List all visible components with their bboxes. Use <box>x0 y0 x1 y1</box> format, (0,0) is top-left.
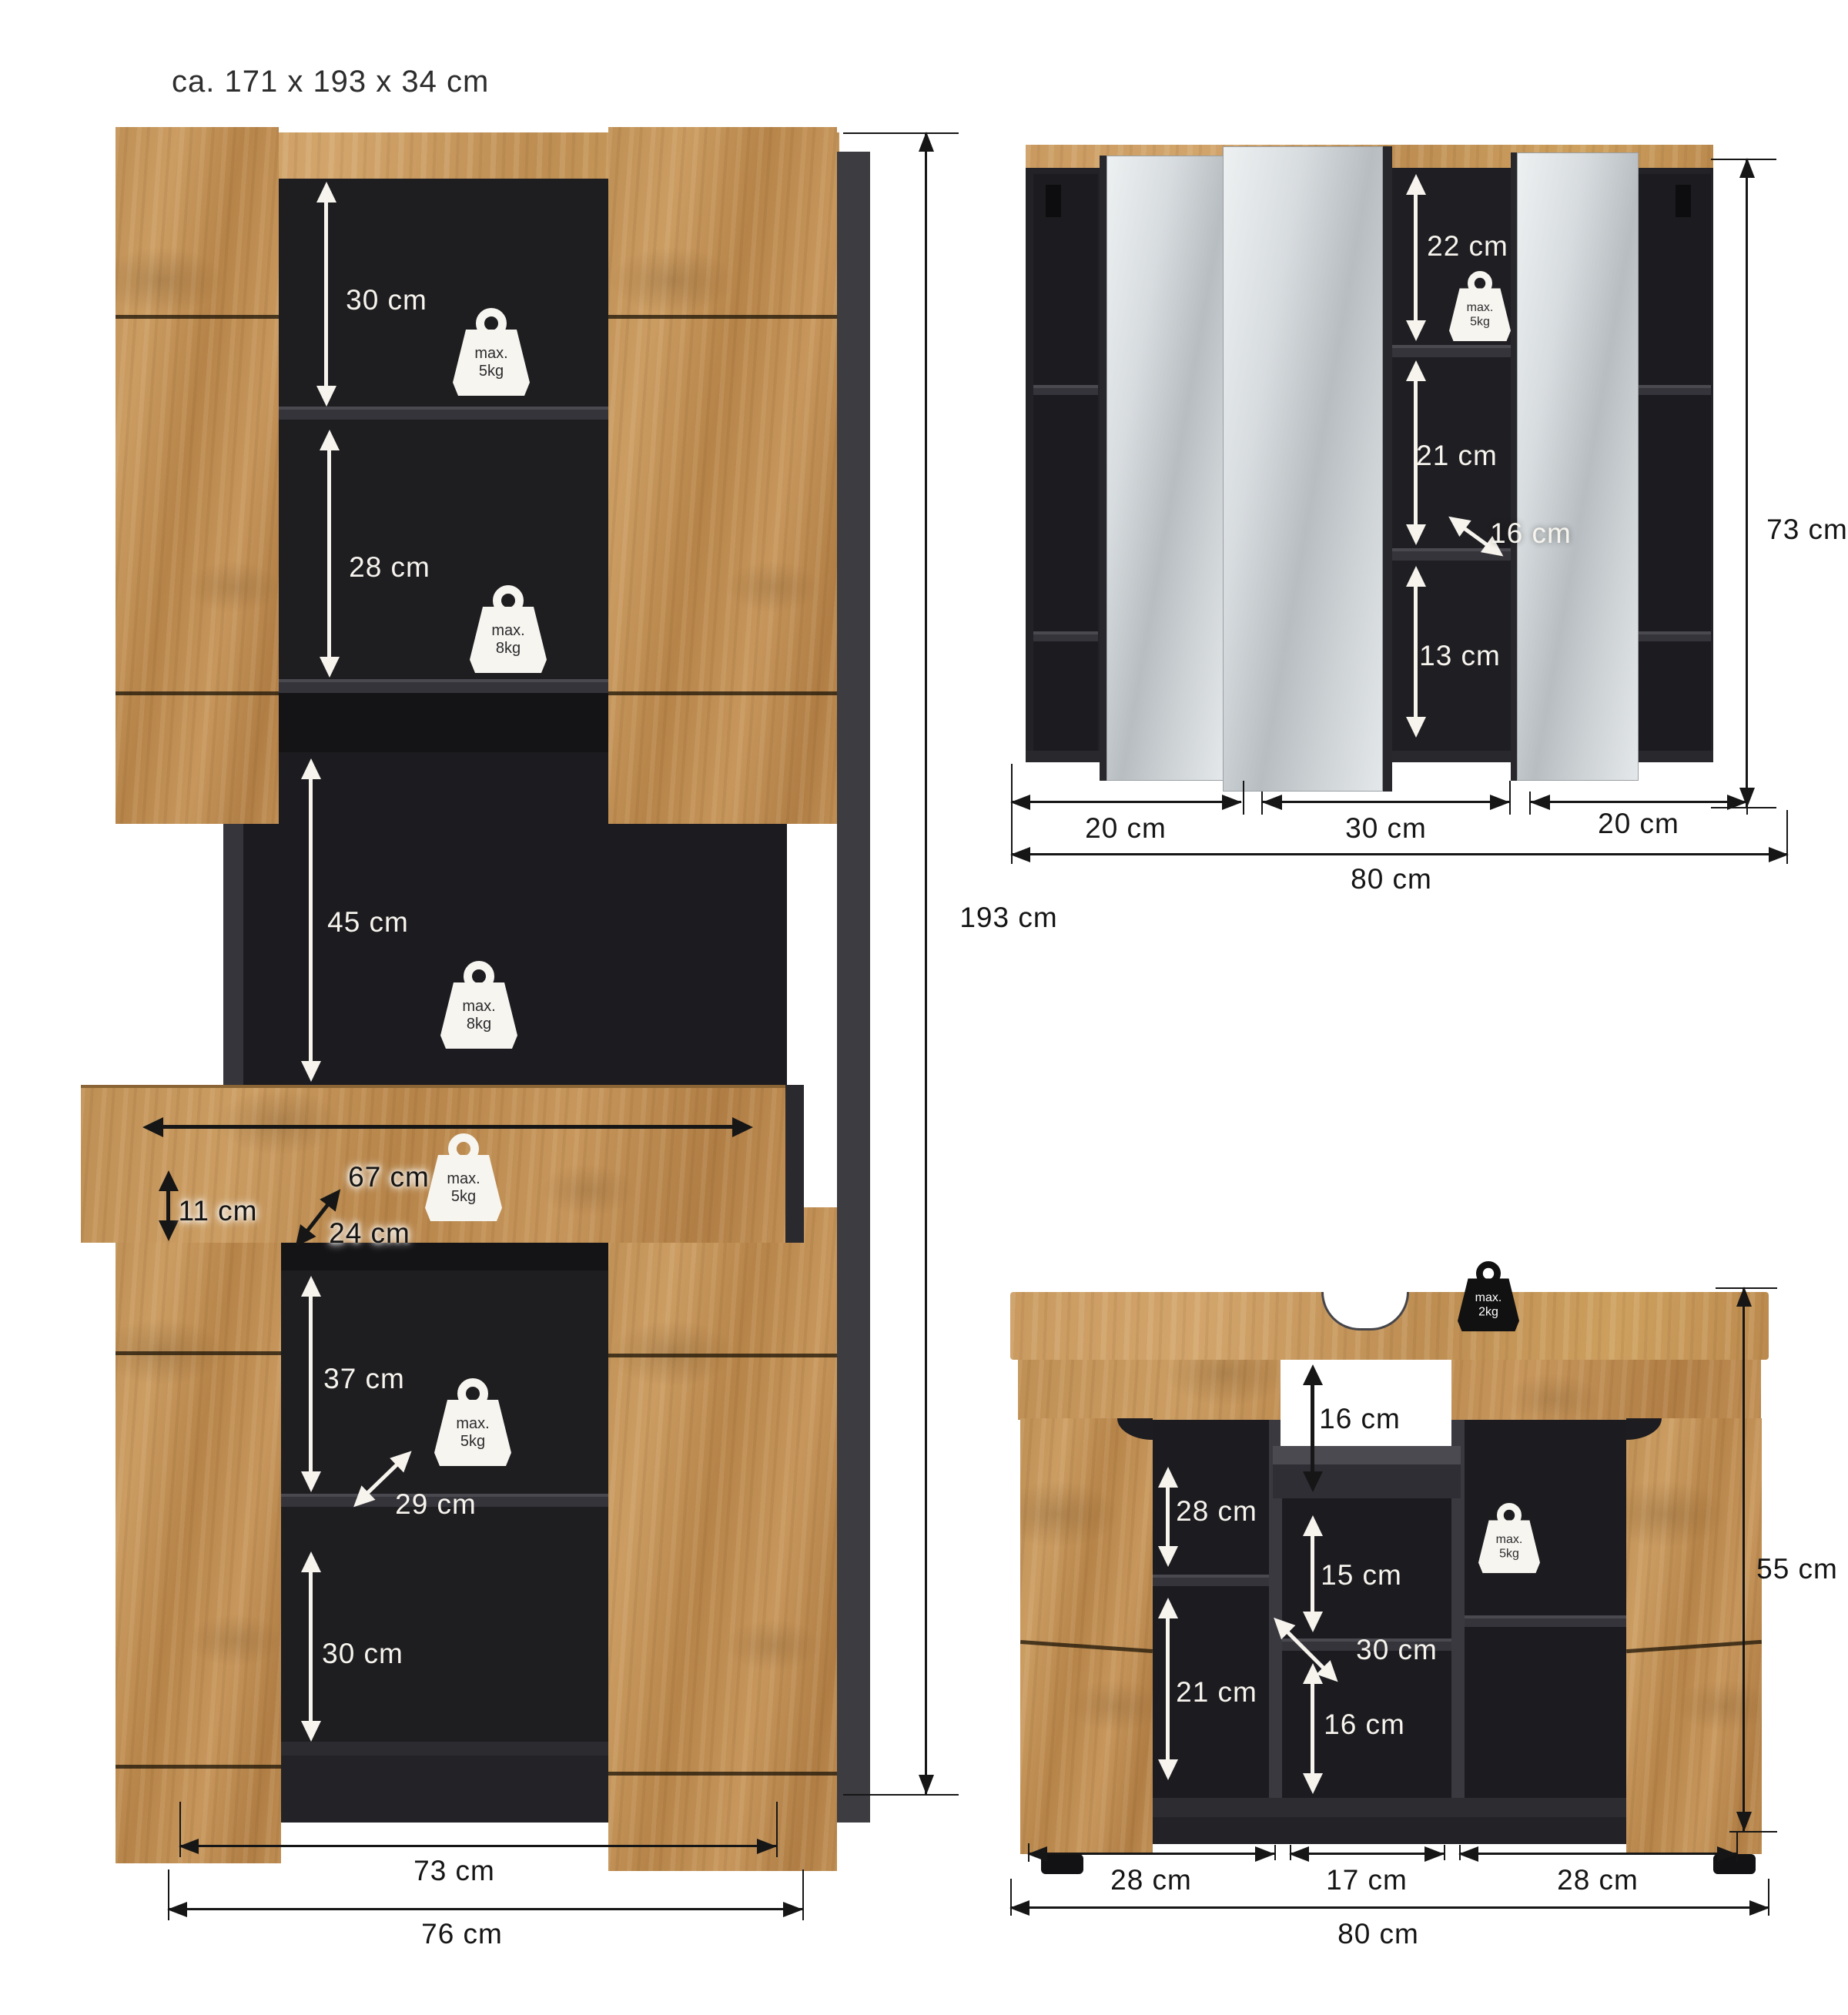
dim-vanity-lower-center: 16 cm <box>1324 1709 1405 1741</box>
arrow-open-compartment-height <box>309 758 313 1082</box>
mirror-door-center <box>1223 146 1392 792</box>
max-load-badge-countertop: max.2kg <box>1458 1261 1519 1331</box>
dim-mirror-middle-section: 21 cm <box>1416 440 1498 472</box>
door-groove <box>608 691 837 695</box>
door-groove <box>115 1351 281 1355</box>
door-groove <box>608 1354 837 1357</box>
vanity-center-shelf-top <box>1273 1446 1461 1464</box>
max-load-value: 5kg <box>451 1188 476 1206</box>
dim-drawer-width: 67 cm <box>348 1161 430 1193</box>
arrow-lower-compartment-height <box>309 1276 313 1492</box>
dim-tick <box>843 1794 959 1796</box>
max-load-label: max. <box>447 1170 480 1188</box>
vanity-base <box>1151 1817 1626 1844</box>
vanity-right-door <box>1626 1418 1762 1854</box>
dim-vanity-center: 17 cm <box>1326 1864 1408 1896</box>
dim-top-shelf: 30 cm <box>346 284 427 316</box>
mirror-cabinet-left-column <box>1033 174 1098 751</box>
arrow-mirror-bottom-section <box>1414 566 1418 738</box>
arrow-drawer-height <box>166 1170 170 1241</box>
dim-vanity-center-shelf: 15 cm <box>1321 1559 1402 1592</box>
dim-total-height: 193 cm <box>959 902 1057 934</box>
arrow-vanity-lower-center <box>1311 1663 1314 1794</box>
max-load-value: 2kg <box>1478 1305 1498 1319</box>
door-groove <box>115 315 279 319</box>
dim-mirror-top-section: 22 cm <box>1427 230 1508 263</box>
mirror-cabinet-right-column <box>1635 174 1711 751</box>
dim-inner-width: 73 cm <box>413 1855 495 1887</box>
mirror-cabinet-right-shelf-1 <box>1635 385 1711 395</box>
dim-vanity-upper-left: 28 cm <box>1176 1495 1257 1528</box>
dim-open-compartment: 45 cm <box>327 906 409 939</box>
dim-total-width: 76 cm <box>421 1918 503 1950</box>
dim-mirror-left-door: 20 cm <box>1085 812 1167 845</box>
door-handle-notch <box>1117 1418 1153 1440</box>
max-load-label: max. <box>456 1415 489 1433</box>
dim-bottom-shelf: 30 cm <box>322 1638 403 1670</box>
vanity-foot-left <box>1041 1854 1083 1874</box>
tall-cabinet-drawer-side <box>785 1085 804 1243</box>
mirror-door-left <box>1100 156 1224 781</box>
dim-lower-compartment: 37 cm <box>323 1363 405 1395</box>
dim-mirror-center-door: 30 cm <box>1345 812 1427 845</box>
door-groove <box>608 315 837 319</box>
tall-cabinet-lower-left-door <box>115 1207 281 1863</box>
arrow-second-shelf-height <box>327 430 331 678</box>
tall-cabinet-upper-right-door <box>608 127 837 824</box>
dimline-vanity-total-width <box>1010 1906 1769 1909</box>
dimline-mirror-total-width <box>1011 853 1788 855</box>
tall-cabinet-lower-right-door <box>608 1207 837 1871</box>
vanity-bottom-board <box>1151 1798 1626 1817</box>
arrow-bottom-shelf-height <box>309 1551 313 1742</box>
max-load-label: max. <box>491 622 524 640</box>
dim-vanity-total-width: 80 cm <box>1337 1918 1419 1950</box>
dim-vanity-right-door: 28 cm <box>1557 1864 1639 1896</box>
max-load-label: max. <box>474 345 507 363</box>
dim-second-shelf: 28 cm <box>349 551 430 584</box>
dimline-mirror-center-door <box>1263 801 1509 803</box>
tall-cabinet-upper-left-door <box>115 127 279 824</box>
dim-mirror-right-door: 20 cm <box>1598 808 1679 840</box>
tall-cabinet-side-panel <box>837 152 870 1823</box>
dim-ext <box>1243 781 1244 815</box>
max-load-badge-open-compartment: max.8kg <box>440 961 517 1049</box>
dimline-mirror-left-door <box>1011 801 1241 803</box>
dimline-total-width <box>168 1908 802 1910</box>
dim-mirror-bottom-section: 13 cm <box>1419 640 1501 672</box>
dim-tick <box>843 132 959 134</box>
dim-lower-depth: 29 cm <box>395 1488 477 1521</box>
max-load-label: max. <box>1496 1532 1523 1546</box>
vanity-left-shelf <box>1151 1575 1269 1586</box>
arrow-mirror-top-section <box>1414 174 1418 341</box>
dimline-vanity-center <box>1290 1853 1444 1855</box>
mirror-cabinet-hinge-right <box>1676 185 1691 217</box>
furniture-dimension-diagram: ca. 171 x 193 x 34 cm <box>0 0 1848 2015</box>
dim-mirror-shelf-depth: 16 cm <box>1490 517 1572 550</box>
mirror-cabinet-left-shelf-1 <box>1033 385 1098 395</box>
door-groove <box>608 1772 837 1776</box>
mirror-door-right <box>1511 152 1639 781</box>
vanity-center-shelf-front <box>1273 1464 1461 1498</box>
dimline-total-height <box>925 132 927 1794</box>
max-load-value: 5kg <box>1470 315 1490 329</box>
door-groove <box>115 1765 281 1769</box>
dim-vanity-left-door: 28 cm <box>1110 1864 1192 1896</box>
max-load-value: 5kg <box>460 1433 485 1451</box>
arrow-vanity-siphon-clearance <box>1311 1364 1314 1492</box>
dim-drawer-depth: 24 cm <box>329 1217 410 1250</box>
arrow-vanity-center-shelf <box>1311 1515 1314 1632</box>
max-load-badge-mirror-shelf: max.5kg <box>1449 271 1511 341</box>
max-load-value: 8kg <box>496 640 521 658</box>
vanity-left-door <box>1020 1418 1153 1854</box>
arrow-drawer-width <box>142 1125 753 1129</box>
door-groove <box>1626 1640 1762 1653</box>
dim-vanity-siphon-clearance: 16 cm <box>1319 1403 1401 1435</box>
max-load-value: 8kg <box>467 1016 491 1033</box>
arrow-top-shelf-height <box>324 182 328 407</box>
dimline-vanity-height <box>1743 1287 1745 1831</box>
dim-vanity-lower-left: 21 cm <box>1176 1676 1257 1709</box>
max-load-badge-lower-shelf: max.5kg <box>434 1378 511 1466</box>
dim-mirror-height: 73 cm <box>1766 514 1848 546</box>
dim-drawer-height: 11 cm <box>178 1195 257 1227</box>
arrow-vanity-upper-left <box>1166 1467 1170 1567</box>
mirror-cabinet-left-shelf-2 <box>1033 631 1098 641</box>
max-load-value: 5kg <box>1499 1547 1519 1561</box>
door-groove <box>1020 1640 1153 1653</box>
mirror-cabinet-center-shelf-1 <box>1386 345 1511 357</box>
door-groove <box>115 691 279 695</box>
max-load-badge-vanity-shelf: max.5kg <box>1478 1503 1540 1573</box>
max-load-badge-second-shelf: max.8kg <box>470 585 547 673</box>
dimline-vanity-right-door <box>1459 1853 1736 1855</box>
dimline-vanity-left-door <box>1028 1853 1274 1855</box>
dim-vanity-shelf-depth: 30 cm <box>1356 1634 1438 1666</box>
dimline-inner-width <box>179 1845 776 1847</box>
max-load-value: 5kg <box>479 363 504 380</box>
max-load-badge-drawer: max.5kg <box>425 1133 502 1221</box>
max-load-label: max. <box>1467 300 1494 314</box>
dimline-mirror-right-door <box>1531 801 1746 803</box>
dim-mirror-total-width: 80 cm <box>1351 863 1432 895</box>
max-load-label: max. <box>1475 1290 1502 1304</box>
max-load-badge-top-shelf: max.5kg <box>453 308 530 396</box>
arrow-vanity-lower-left <box>1166 1598 1170 1780</box>
door-handle-notch <box>1626 1418 1662 1440</box>
vanity-right-shelf <box>1465 1615 1626 1627</box>
max-load-label: max. <box>462 998 495 1016</box>
mirror-cabinet-hinge-left <box>1046 185 1061 217</box>
dimline-mirror-height <box>1746 159 1748 807</box>
page-title: ca. 171 x 193 x 34 cm <box>172 65 489 99</box>
dim-vanity-height: 55 cm <box>1756 1553 1838 1585</box>
mirror-cabinet-right-shelf-2 <box>1635 631 1711 641</box>
